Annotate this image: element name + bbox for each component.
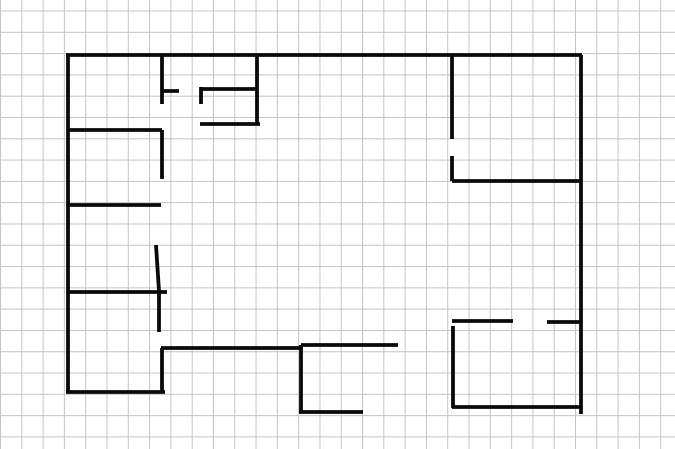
wall-left-room3-door-leaf	[156, 245, 159, 291]
floorplan-sketch	[0, 0, 675, 449]
drawing-canvas[interactable]	[0, 0, 675, 449]
